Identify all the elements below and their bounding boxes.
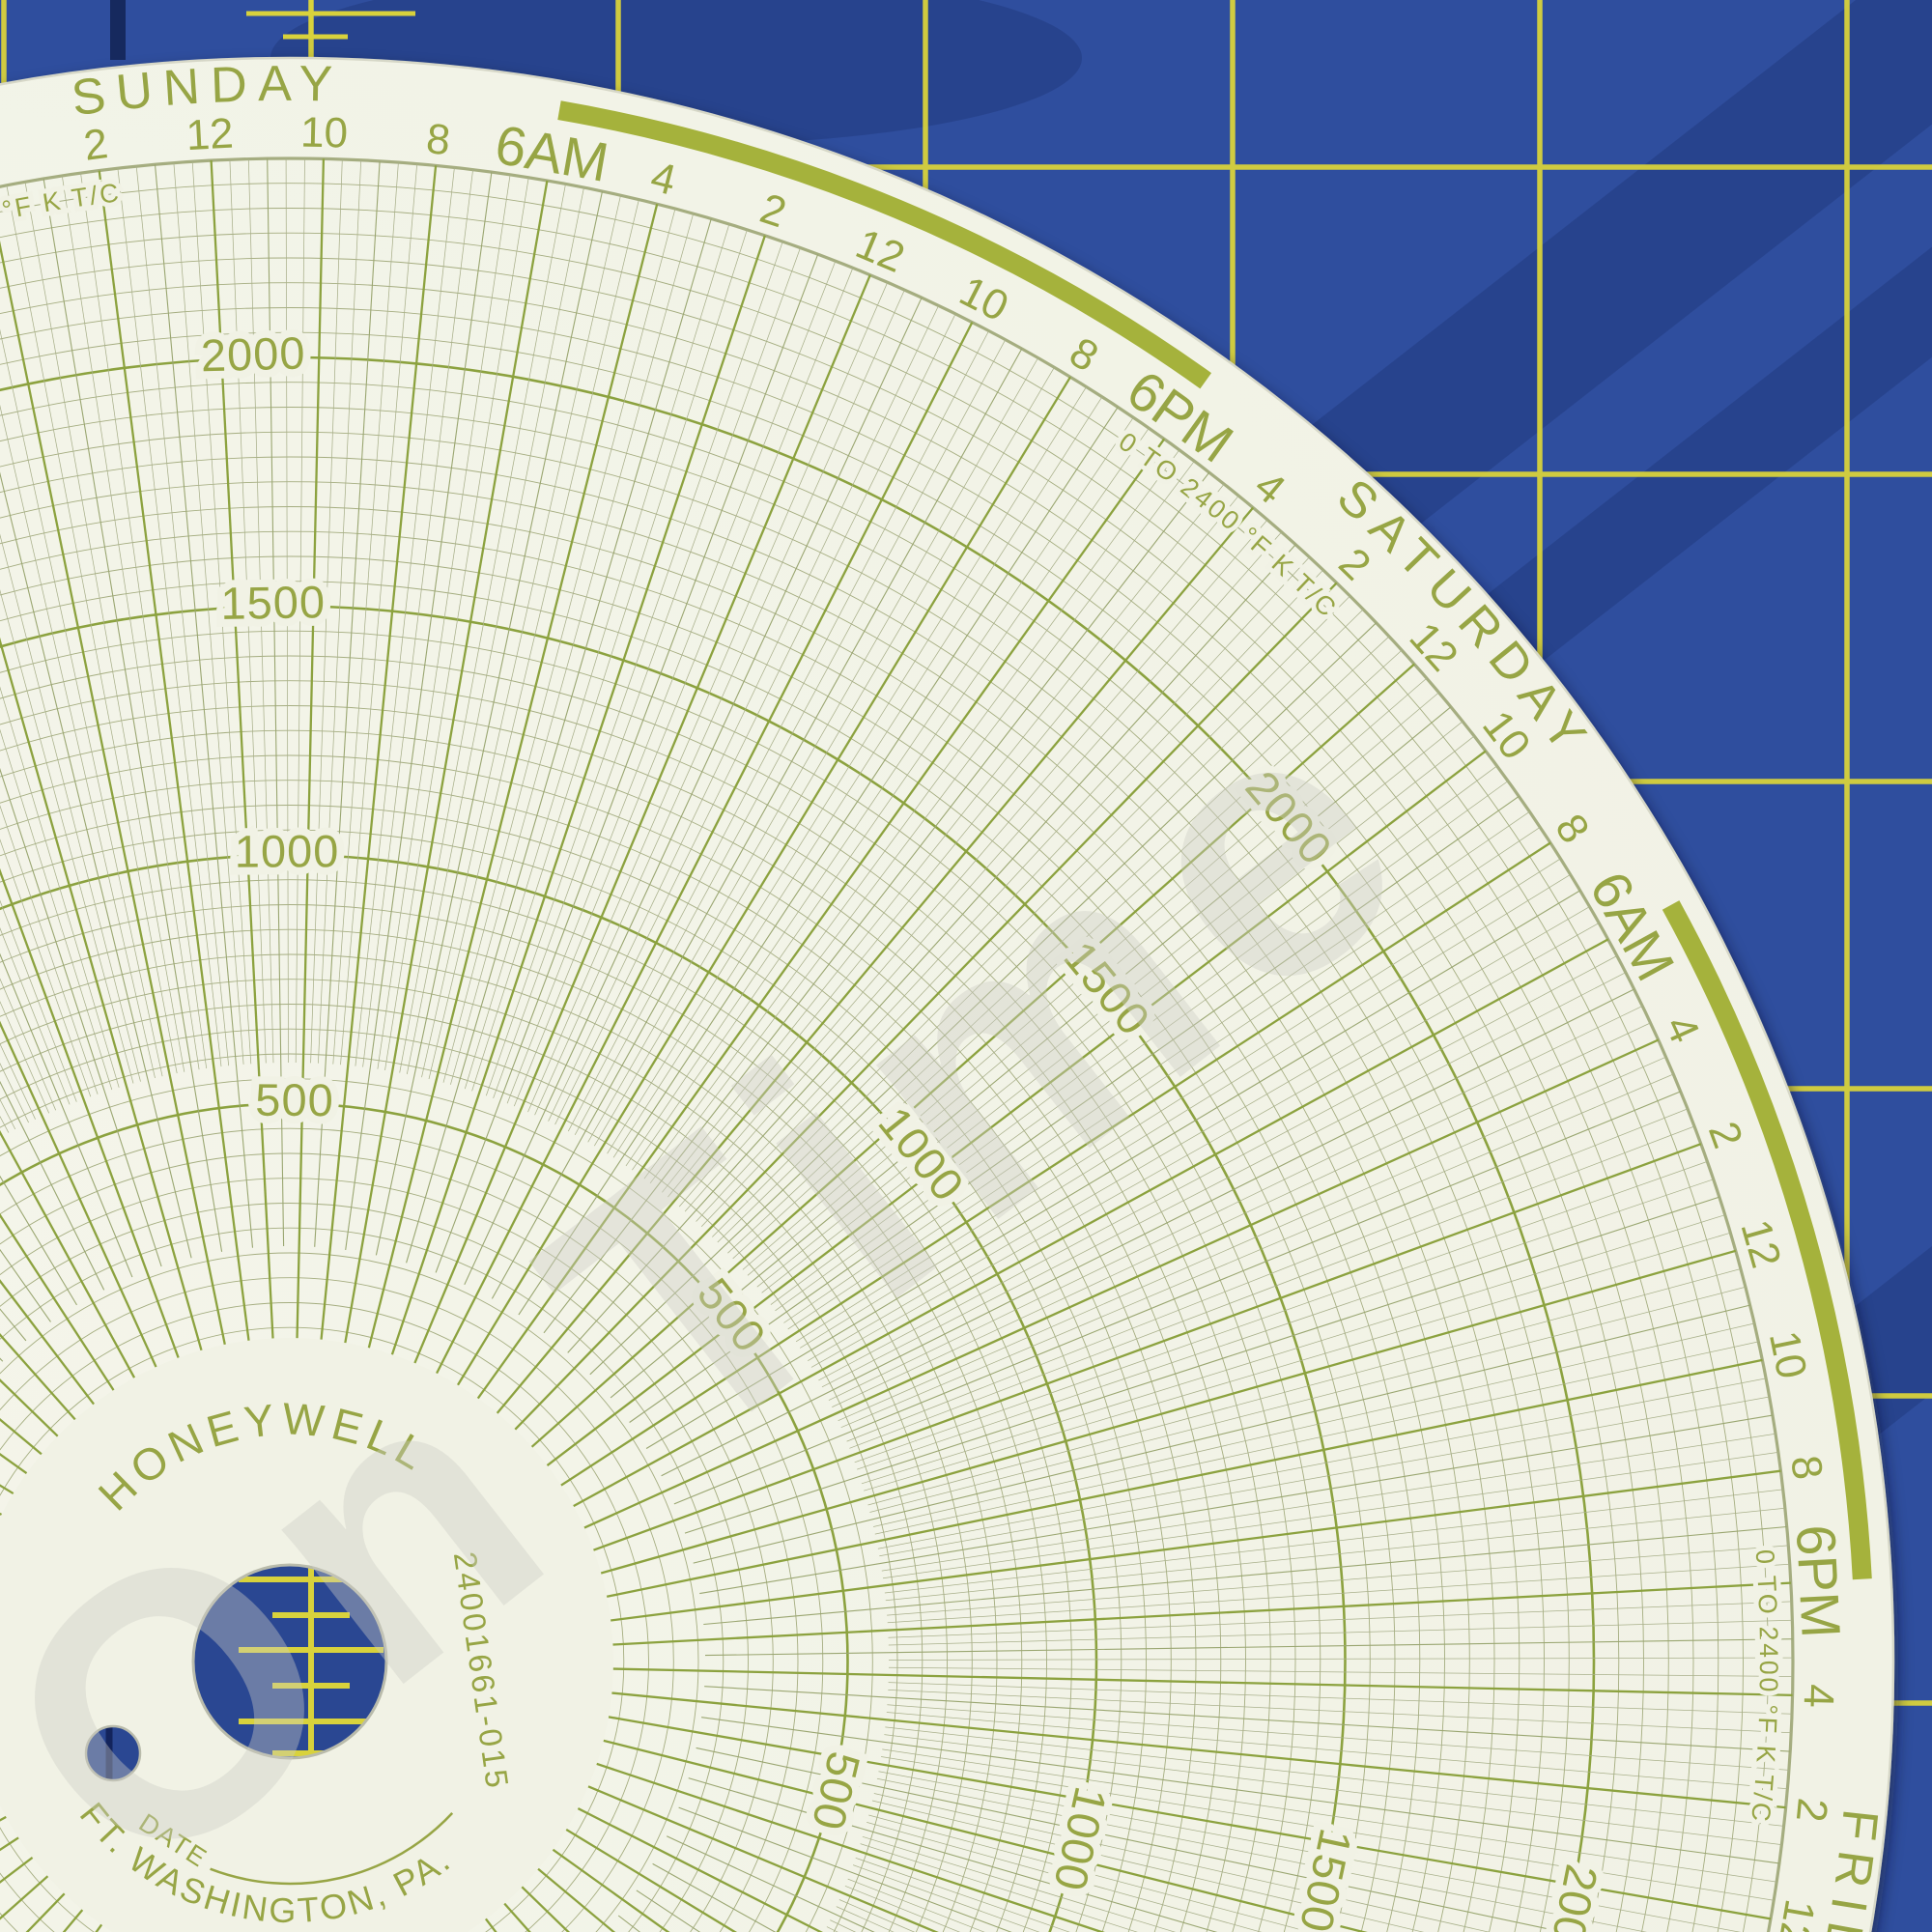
hour-label: 10 [300, 108, 349, 156]
hour-label: 8 [424, 115, 452, 164]
hour-label: 4 [1795, 1684, 1843, 1709]
hour-label: 10 [1760, 1327, 1816, 1383]
hour-label: 2 [1787, 1796, 1836, 1824]
ring-value-label: 1500 [220, 576, 326, 629]
photo-canvas: 5001000150020005001000150020005001000150… [0, 0, 1932, 1932]
hour-label: 12 [185, 110, 234, 159]
hour-label: 6PM [1784, 1523, 1852, 1639]
chart-photo-scene: 5001000150020005001000150020005001000150… [0, 0, 1932, 1932]
ring-value-label: 2000 [200, 327, 306, 381]
mat-seam [110, 0, 126, 60]
ring-value-label: 500 [255, 1074, 334, 1126]
ring-value-label: 1000 [235, 825, 340, 876]
